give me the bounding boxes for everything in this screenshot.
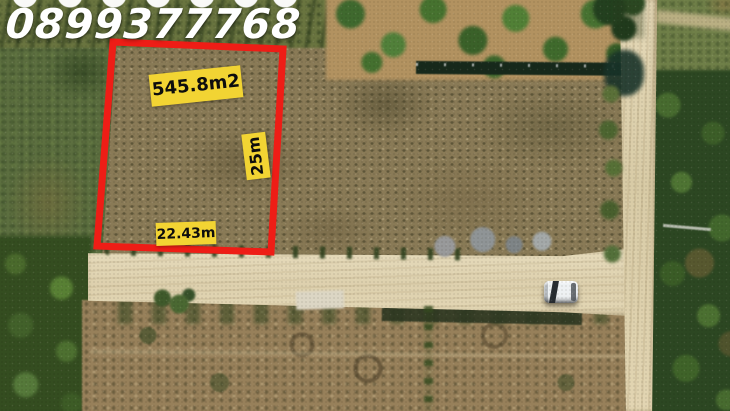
cropped-overlay-artifacts (0, 0, 310, 14)
plot-boundary (0, 0, 730, 411)
width-label: 22.43m (156, 221, 217, 246)
aerial-photo: 545.8m2 25m 22.43m 0899377768 (0, 0, 730, 411)
